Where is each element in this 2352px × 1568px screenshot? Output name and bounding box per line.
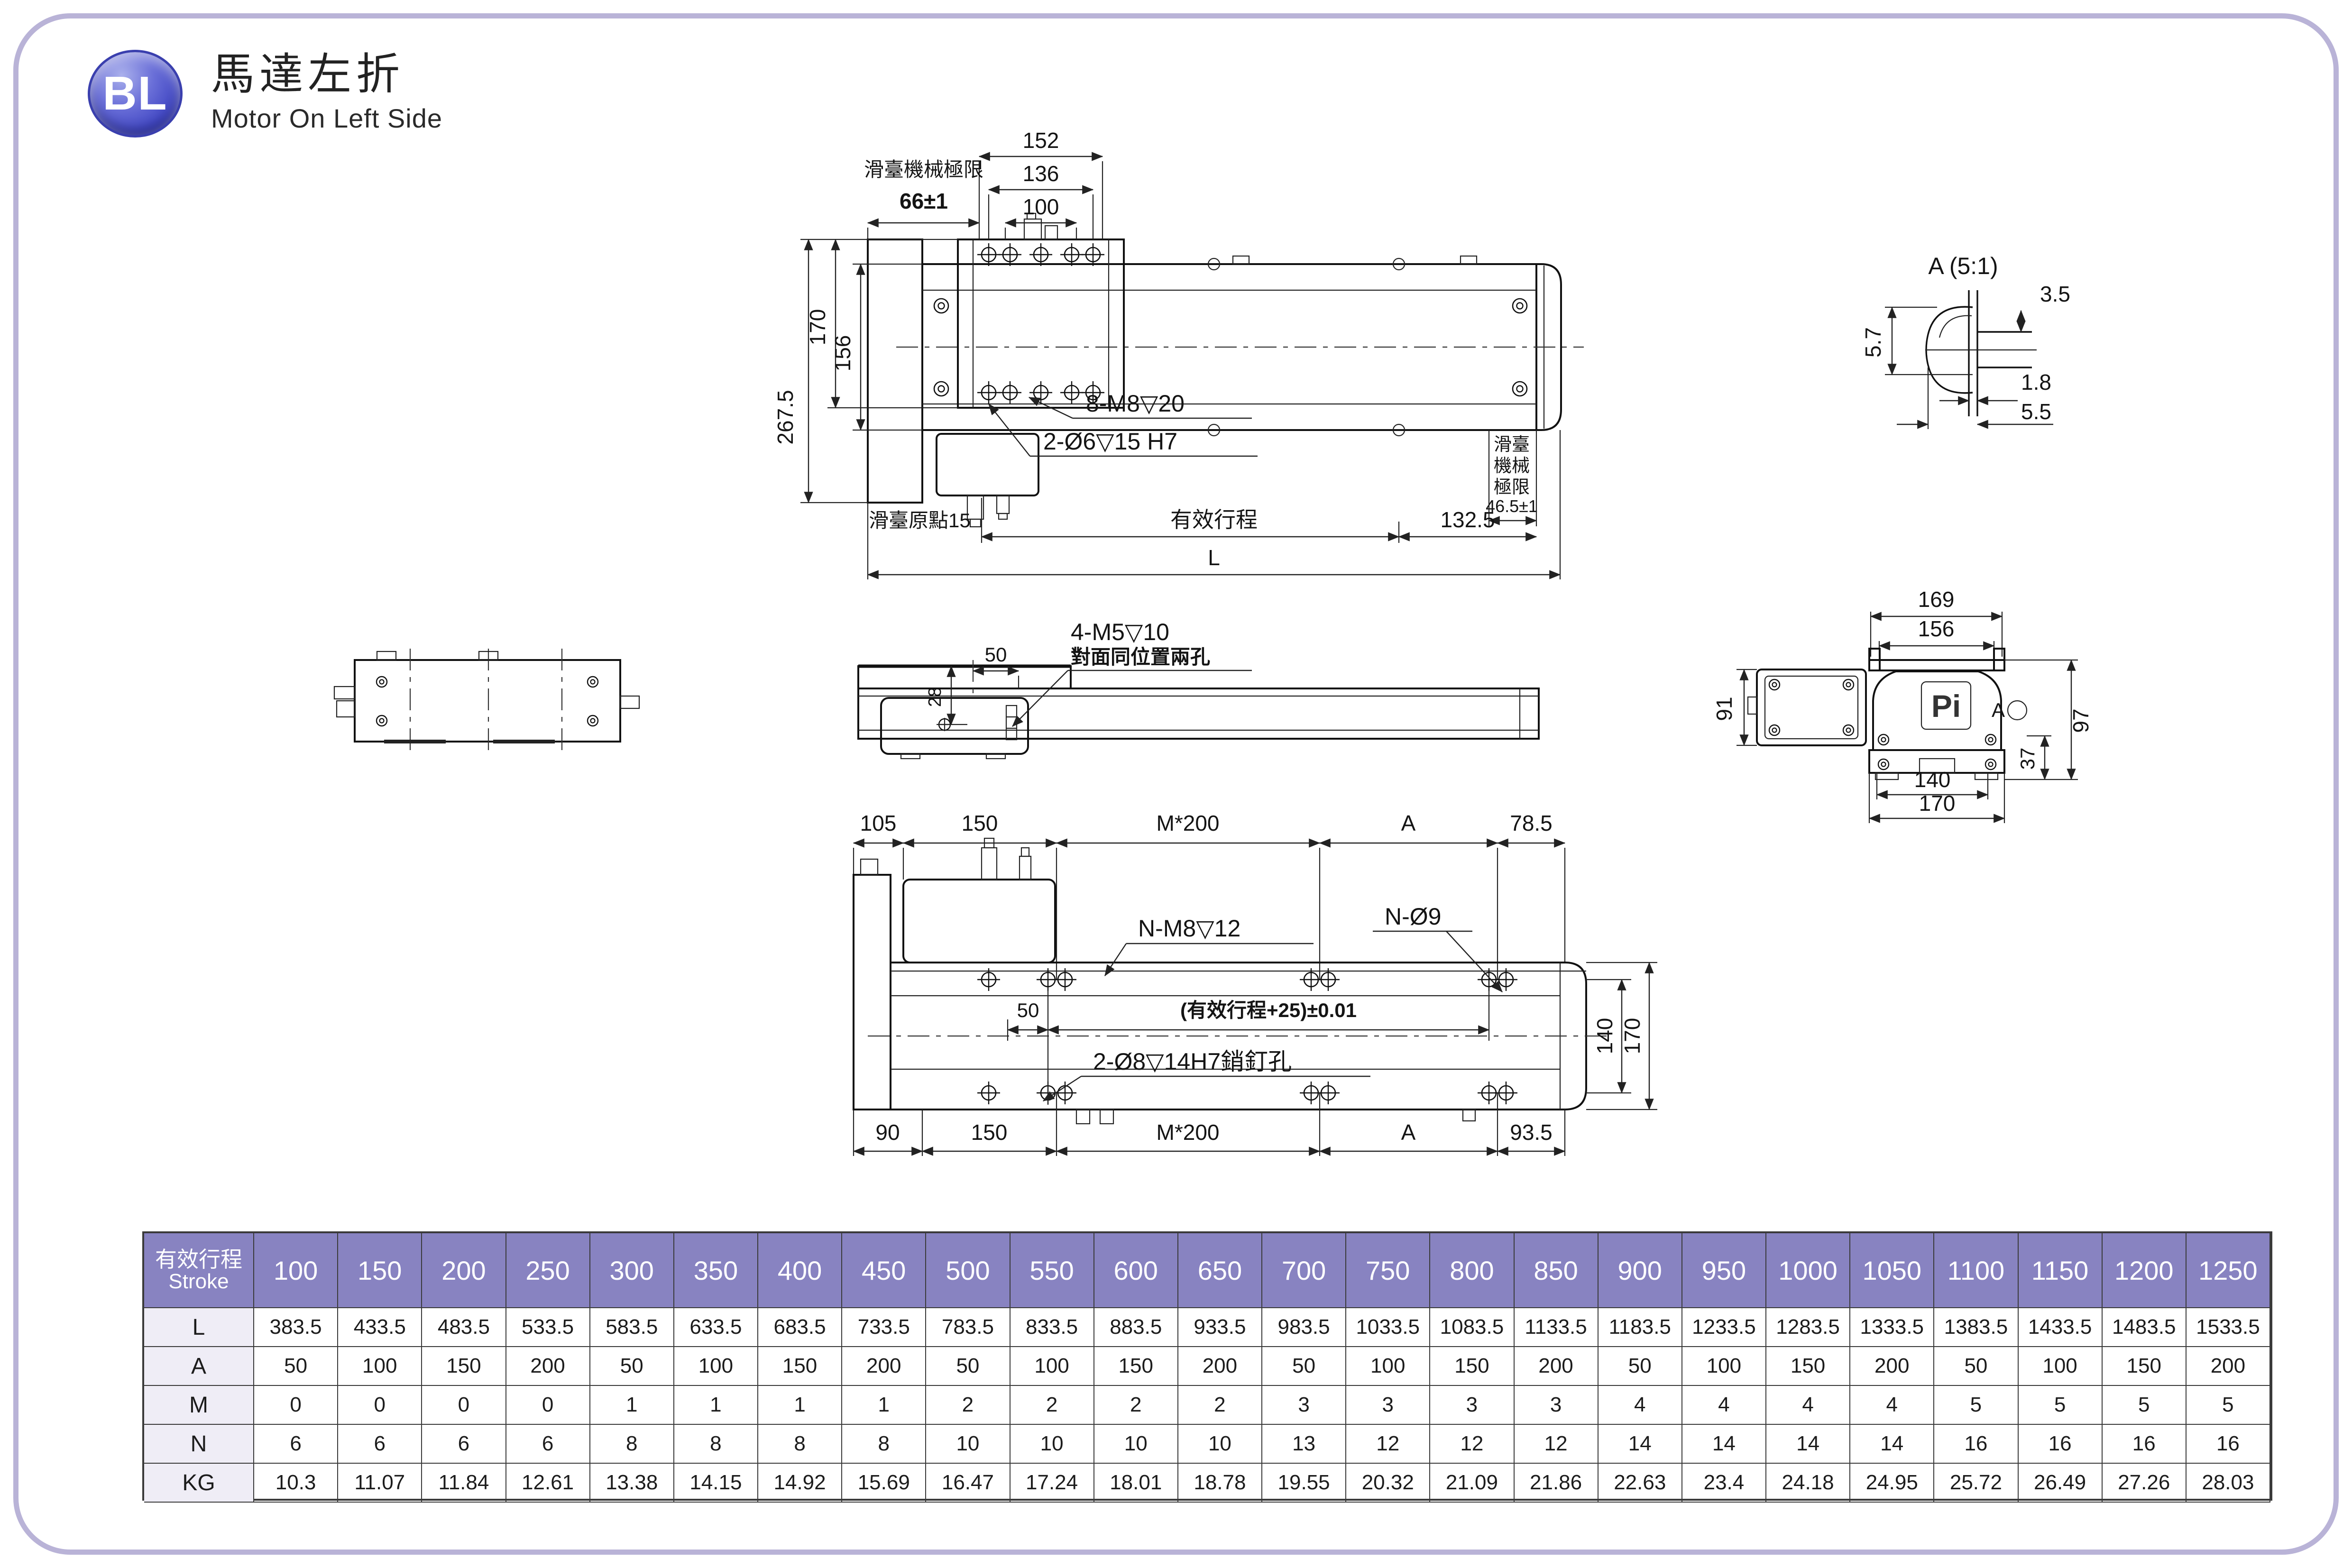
table-header-col: 200 xyxy=(422,1233,506,1308)
table-cell: 1433.5 xyxy=(2019,1308,2103,1347)
left-end-view-drawing xyxy=(334,649,639,753)
table-cell: 383.5 xyxy=(254,1308,338,1347)
dim-150-top: 150 xyxy=(962,811,998,835)
table-cell: 20.32 xyxy=(1346,1464,1430,1503)
table-header-col: 800 xyxy=(1430,1233,1514,1308)
table-cell: 17.24 xyxy=(1011,1464,1094,1503)
label-n-m8: N-M8▽12 xyxy=(1138,915,1240,942)
table-cell: 50 xyxy=(590,1347,674,1386)
label-2-o8-pin: 2-Ø8▽14H7銷釘孔 xyxy=(1093,1048,1292,1075)
dim-97: 97 xyxy=(2068,708,2093,733)
dim-152: 152 xyxy=(1023,128,1059,153)
table-header-col: 100 xyxy=(254,1233,338,1308)
dim-170-top: 170 xyxy=(805,309,830,346)
table-cell: 200 xyxy=(2187,1347,2270,1386)
limit-right-2: 機械 xyxy=(1494,456,1530,476)
table-cell: 1083.5 xyxy=(1430,1308,1514,1347)
dim-140-bottom: 140 xyxy=(1592,1018,1617,1055)
top-motor-block xyxy=(937,434,1038,495)
table-cell: 433.5 xyxy=(338,1308,422,1347)
dim-m200-top: M*200 xyxy=(1157,811,1220,835)
table-header-col: 400 xyxy=(758,1233,842,1308)
table-cell: 28.03 xyxy=(2187,1464,2270,1503)
limit-right-3: 極限 xyxy=(1494,477,1530,497)
table-cell: 150 xyxy=(758,1347,842,1386)
table-cell: 0 xyxy=(506,1386,590,1425)
label-stroke: 有效行程 xyxy=(1170,507,1258,532)
table-cell: 3 xyxy=(1515,1386,1599,1425)
table-cell: 26.49 xyxy=(2019,1464,2103,1503)
dim-100: 100 xyxy=(1023,194,1059,219)
table-header-col: 750 xyxy=(1346,1233,1430,1308)
table-header-col: 350 xyxy=(674,1233,758,1308)
table-cell: 5 xyxy=(2103,1386,2187,1425)
table-header-col: 850 xyxy=(1515,1233,1599,1308)
table-cell: 633.5 xyxy=(674,1308,758,1347)
top-left-plate xyxy=(868,239,922,503)
table-cell: 6 xyxy=(338,1425,422,1464)
table-cell: 533.5 xyxy=(506,1308,590,1347)
table-cell: 16.47 xyxy=(926,1464,1010,1503)
table-cell: 100 xyxy=(674,1347,758,1386)
table-header-col: 700 xyxy=(1262,1233,1346,1308)
table-cell: 2 xyxy=(1011,1386,1094,1425)
table-cell: 8 xyxy=(674,1425,758,1464)
dim-66: 66±1 xyxy=(900,189,948,213)
table-cell: 10 xyxy=(1094,1425,1178,1464)
dim-170-bottom: 170 xyxy=(1620,1018,1645,1055)
table-header-col: 450 xyxy=(842,1233,926,1308)
table-cell: 100 xyxy=(2019,1347,2103,1386)
table-cell: 1133.5 xyxy=(1515,1308,1599,1347)
dim-5-5: 5.5 xyxy=(2021,399,2051,424)
table-cell: 1 xyxy=(842,1386,926,1425)
table-cell: 10 xyxy=(1178,1425,1262,1464)
table-cell: 10 xyxy=(1011,1425,1094,1464)
table-row-label: A xyxy=(144,1347,254,1386)
table-cell: 483.5 xyxy=(422,1308,506,1347)
table-cell: 8 xyxy=(590,1425,674,1464)
table-cell: 583.5 xyxy=(590,1308,674,1347)
label-4-m5-sub: 對面同位置兩孔 xyxy=(1071,646,1210,668)
table-cell: 3 xyxy=(1430,1386,1514,1425)
table-cell: 5 xyxy=(2019,1386,2103,1425)
dim-132-5: 132.5 xyxy=(1440,507,1495,532)
table-cell: 8 xyxy=(842,1425,926,1464)
table-cell: 150 xyxy=(2103,1347,2187,1386)
dim-L: L xyxy=(1208,545,1220,570)
bottom-left-plate xyxy=(854,875,891,1110)
table-header-col: 250 xyxy=(506,1233,590,1308)
dim-50-side: 50 xyxy=(985,643,1007,666)
table-cell: 1 xyxy=(590,1386,674,1425)
table-cell: 12 xyxy=(1515,1425,1599,1464)
table-cell: 6 xyxy=(254,1425,338,1464)
dim-150-bottom: 150 xyxy=(971,1120,1008,1145)
table-cell: 24.18 xyxy=(1766,1464,1850,1503)
table-header-col: 1200 xyxy=(2103,1233,2187,1308)
table-cell: 1333.5 xyxy=(1850,1308,1934,1347)
top-view-drawing: 152 136 100 66±1 滑臺機械極限 267.5 170 156 8-… xyxy=(773,128,1584,579)
dim-5-7: 5.7 xyxy=(1861,327,1885,358)
table-cell: 100 xyxy=(1682,1347,1766,1386)
detail-a-callout: A xyxy=(1992,699,2005,721)
table-cell: 200 xyxy=(506,1347,590,1386)
table-cell: 50 xyxy=(1262,1347,1346,1386)
table-cell: 683.5 xyxy=(758,1308,842,1347)
table-header-col: 1250 xyxy=(2187,1233,2270,1308)
table-header-col: 1050 xyxy=(1850,1233,1934,1308)
bottom-motor-block xyxy=(903,880,1055,963)
table-cell: 1233.5 xyxy=(1682,1308,1766,1347)
table-cell: 23.4 xyxy=(1682,1464,1766,1503)
table-header-stroke-en: Stroke xyxy=(168,1271,229,1293)
table-cell: 18.01 xyxy=(1094,1464,1178,1503)
table-header-col: 150 xyxy=(338,1233,422,1308)
table-cell: 25.72 xyxy=(1934,1464,2018,1503)
table-cell: 833.5 xyxy=(1011,1308,1094,1347)
table-cell: 1533.5 xyxy=(2187,1308,2270,1347)
table-cell: 100 xyxy=(1011,1347,1094,1386)
table-cell: 150 xyxy=(1094,1347,1178,1386)
table-cell: 14 xyxy=(1599,1425,1682,1464)
dim-50-bottom: 50 xyxy=(1017,999,1039,1021)
side-carriage-plate xyxy=(858,666,1071,688)
table-cell: 16 xyxy=(2103,1425,2187,1464)
table-cell: 1033.5 xyxy=(1346,1308,1430,1347)
table-cell: 18.78 xyxy=(1178,1464,1262,1503)
table-cell: 3 xyxy=(1346,1386,1430,1425)
dim-156-top: 156 xyxy=(830,335,855,372)
table-cell: 2 xyxy=(1094,1386,1178,1425)
table-cell: 150 xyxy=(422,1347,506,1386)
dim-93-5: 93.5 xyxy=(1510,1120,1553,1145)
table-cell: 1183.5 xyxy=(1599,1308,1682,1347)
table-cell: 783.5 xyxy=(926,1308,1010,1347)
dim-169: 169 xyxy=(1918,587,1955,612)
table-cell: 14.92 xyxy=(758,1464,842,1503)
table-cell: 5 xyxy=(1934,1386,2018,1425)
dim-267-5: 267.5 xyxy=(773,390,798,444)
table-cell: 19.55 xyxy=(1262,1464,1346,1503)
table-header-col: 300 xyxy=(590,1233,674,1308)
right-end-view-drawing: 169 156 Pi A 91 97 37 140 170 xyxy=(1712,587,2093,823)
table-cell: 733.5 xyxy=(842,1308,926,1347)
table-cell: 6 xyxy=(506,1425,590,1464)
table-header-col: 900 xyxy=(1599,1233,1682,1308)
table-header-stroke: 有效行程Stroke xyxy=(144,1233,254,1308)
detail-a-drawing: A (5:1) 3.5 5.7 1.8 5.5 xyxy=(1861,253,2070,429)
table-cell: 1 xyxy=(674,1386,758,1425)
table-header-col: 1000 xyxy=(1766,1233,1850,1308)
table-cell: 50 xyxy=(1599,1347,1682,1386)
table-cell: 983.5 xyxy=(1262,1308,1346,1347)
table-cell: 10 xyxy=(926,1425,1010,1464)
table-cell: 200 xyxy=(1178,1347,1262,1386)
table-cell: 3 xyxy=(1262,1386,1346,1425)
table-cell: 100 xyxy=(1346,1347,1430,1386)
table-header-col: 1150 xyxy=(2019,1233,2103,1308)
table-header-col: 1100 xyxy=(1934,1233,2018,1308)
pi-logo: Pi xyxy=(1931,688,1961,724)
dim-78-5: 78.5 xyxy=(1510,811,1553,835)
label-slider-mech-limit: 滑臺機械極限 xyxy=(864,158,983,181)
dim-37: 37 xyxy=(2016,748,2039,770)
label-2-o6: 2-Ø6▽15 H7 xyxy=(1043,428,1177,455)
dim-m200-bottom: M*200 xyxy=(1157,1120,1220,1145)
table-cell: 1383.5 xyxy=(1934,1308,2018,1347)
table-cell: 0 xyxy=(338,1386,422,1425)
table-header-col: 950 xyxy=(1682,1233,1766,1308)
dim-a-bottom: A xyxy=(1401,1120,1416,1145)
dim-91: 91 xyxy=(1712,697,1736,721)
label-8-m8: 8-M8▽20 xyxy=(1086,390,1185,417)
table-header-col: 650 xyxy=(1178,1233,1262,1308)
table-cell: 4 xyxy=(1850,1386,1934,1425)
table-cell: 14.15 xyxy=(674,1464,758,1503)
table-header-col: 550 xyxy=(1011,1233,1094,1308)
detail-title: A (5:1) xyxy=(1928,253,1998,279)
table-cell: 11.84 xyxy=(422,1464,506,1503)
side-view-drawing: 50 28 4-M5▽10 對面同位置兩孔 xyxy=(858,619,1539,759)
table-cell: 4 xyxy=(1682,1386,1766,1425)
dim-1-8: 1.8 xyxy=(2021,370,2051,394)
table-cell: 1483.5 xyxy=(2103,1308,2187,1347)
table-cell: 0 xyxy=(422,1386,506,1425)
table-cell: 2 xyxy=(1178,1386,1262,1425)
table-cell: 15.69 xyxy=(842,1464,926,1503)
table-cell: 22.63 xyxy=(1599,1464,1682,1503)
table-cell: 6 xyxy=(422,1425,506,1464)
table-cell: 16 xyxy=(2019,1425,2103,1464)
stroke-table: 有效行程Stroke100150200250300350400450500550… xyxy=(142,1231,2272,1501)
table-cell: 16 xyxy=(2187,1425,2270,1464)
dim-140-end: 140 xyxy=(1914,767,1951,792)
table-cell: 21.09 xyxy=(1430,1464,1514,1503)
table-cell: 12.61 xyxy=(506,1464,590,1503)
table-cell: 200 xyxy=(1515,1347,1599,1386)
table-header-col: 600 xyxy=(1094,1233,1178,1308)
label-origin: 滑臺原點15 xyxy=(869,509,971,532)
table-cell: 200 xyxy=(1850,1347,1934,1386)
table-row-label: N xyxy=(144,1425,254,1464)
table-cell: 0 xyxy=(254,1386,338,1425)
table-cell: 12 xyxy=(1430,1425,1514,1464)
table-cell: 2 xyxy=(926,1386,1010,1425)
table-cell: 10.3 xyxy=(254,1464,338,1503)
table-cell: 150 xyxy=(1430,1347,1514,1386)
table-cell: 100 xyxy=(338,1347,422,1386)
limit-right-1: 滑臺 xyxy=(1494,435,1530,455)
table-header-stroke-zh: 有效行程 xyxy=(155,1248,242,1271)
bottom-view-drawing: 105 150 M*200 A 78.5 N-M8▽12 N-Ø9 50 xyxy=(854,811,1657,1156)
table-cell: 16 xyxy=(1934,1425,2018,1464)
table-row-label: M xyxy=(144,1386,254,1425)
table-cell: 14 xyxy=(1766,1425,1850,1464)
table-cell: 11.07 xyxy=(338,1464,422,1503)
table-cell: 1283.5 xyxy=(1766,1308,1850,1347)
label-n-o9: N-Ø9 xyxy=(1385,903,1441,930)
dim-105: 105 xyxy=(860,811,897,835)
table-cell: 12 xyxy=(1346,1425,1430,1464)
table-cell: 8 xyxy=(758,1425,842,1464)
table-cell: 883.5 xyxy=(1094,1308,1178,1347)
table-cell: 4 xyxy=(1766,1386,1850,1425)
dim-stroke-tolerance: (有效行程+25)±0.01 xyxy=(1180,999,1357,1021)
dim-28: 28 xyxy=(925,687,945,707)
dim-170-end: 170 xyxy=(1919,791,1956,816)
table-cell: 24.95 xyxy=(1850,1464,1934,1503)
dim-136: 136 xyxy=(1023,161,1059,186)
label-4-m5: 4-M5▽10 xyxy=(1071,619,1169,645)
table-cell: 200 xyxy=(842,1347,926,1386)
table-row-label: L xyxy=(144,1308,254,1347)
dim-3-5: 3.5 xyxy=(2040,282,2070,306)
table-cell: 933.5 xyxy=(1178,1308,1262,1347)
table-cell: 50 xyxy=(1934,1347,2018,1386)
table-cell: 50 xyxy=(254,1347,338,1386)
table-cell: 1 xyxy=(758,1386,842,1425)
table-cell: 150 xyxy=(1766,1347,1850,1386)
table-cell: 21.86 xyxy=(1515,1464,1599,1503)
dim-156-end: 156 xyxy=(1918,616,1955,641)
table-header-col: 500 xyxy=(926,1233,1010,1308)
table-cell: 5 xyxy=(2187,1386,2270,1425)
table-cell: 14 xyxy=(1682,1425,1766,1464)
table-cell: 27.26 xyxy=(2103,1464,2187,1503)
table-cell: 13 xyxy=(1262,1425,1346,1464)
table-cell: 14 xyxy=(1850,1425,1934,1464)
table-row-label: KG xyxy=(144,1464,254,1503)
dim-a-top: A xyxy=(1401,811,1416,835)
dim-90: 90 xyxy=(875,1120,900,1145)
table-cell: 50 xyxy=(926,1347,1010,1386)
table-cell: 13.38 xyxy=(590,1464,674,1503)
table-cell: 4 xyxy=(1599,1386,1682,1425)
